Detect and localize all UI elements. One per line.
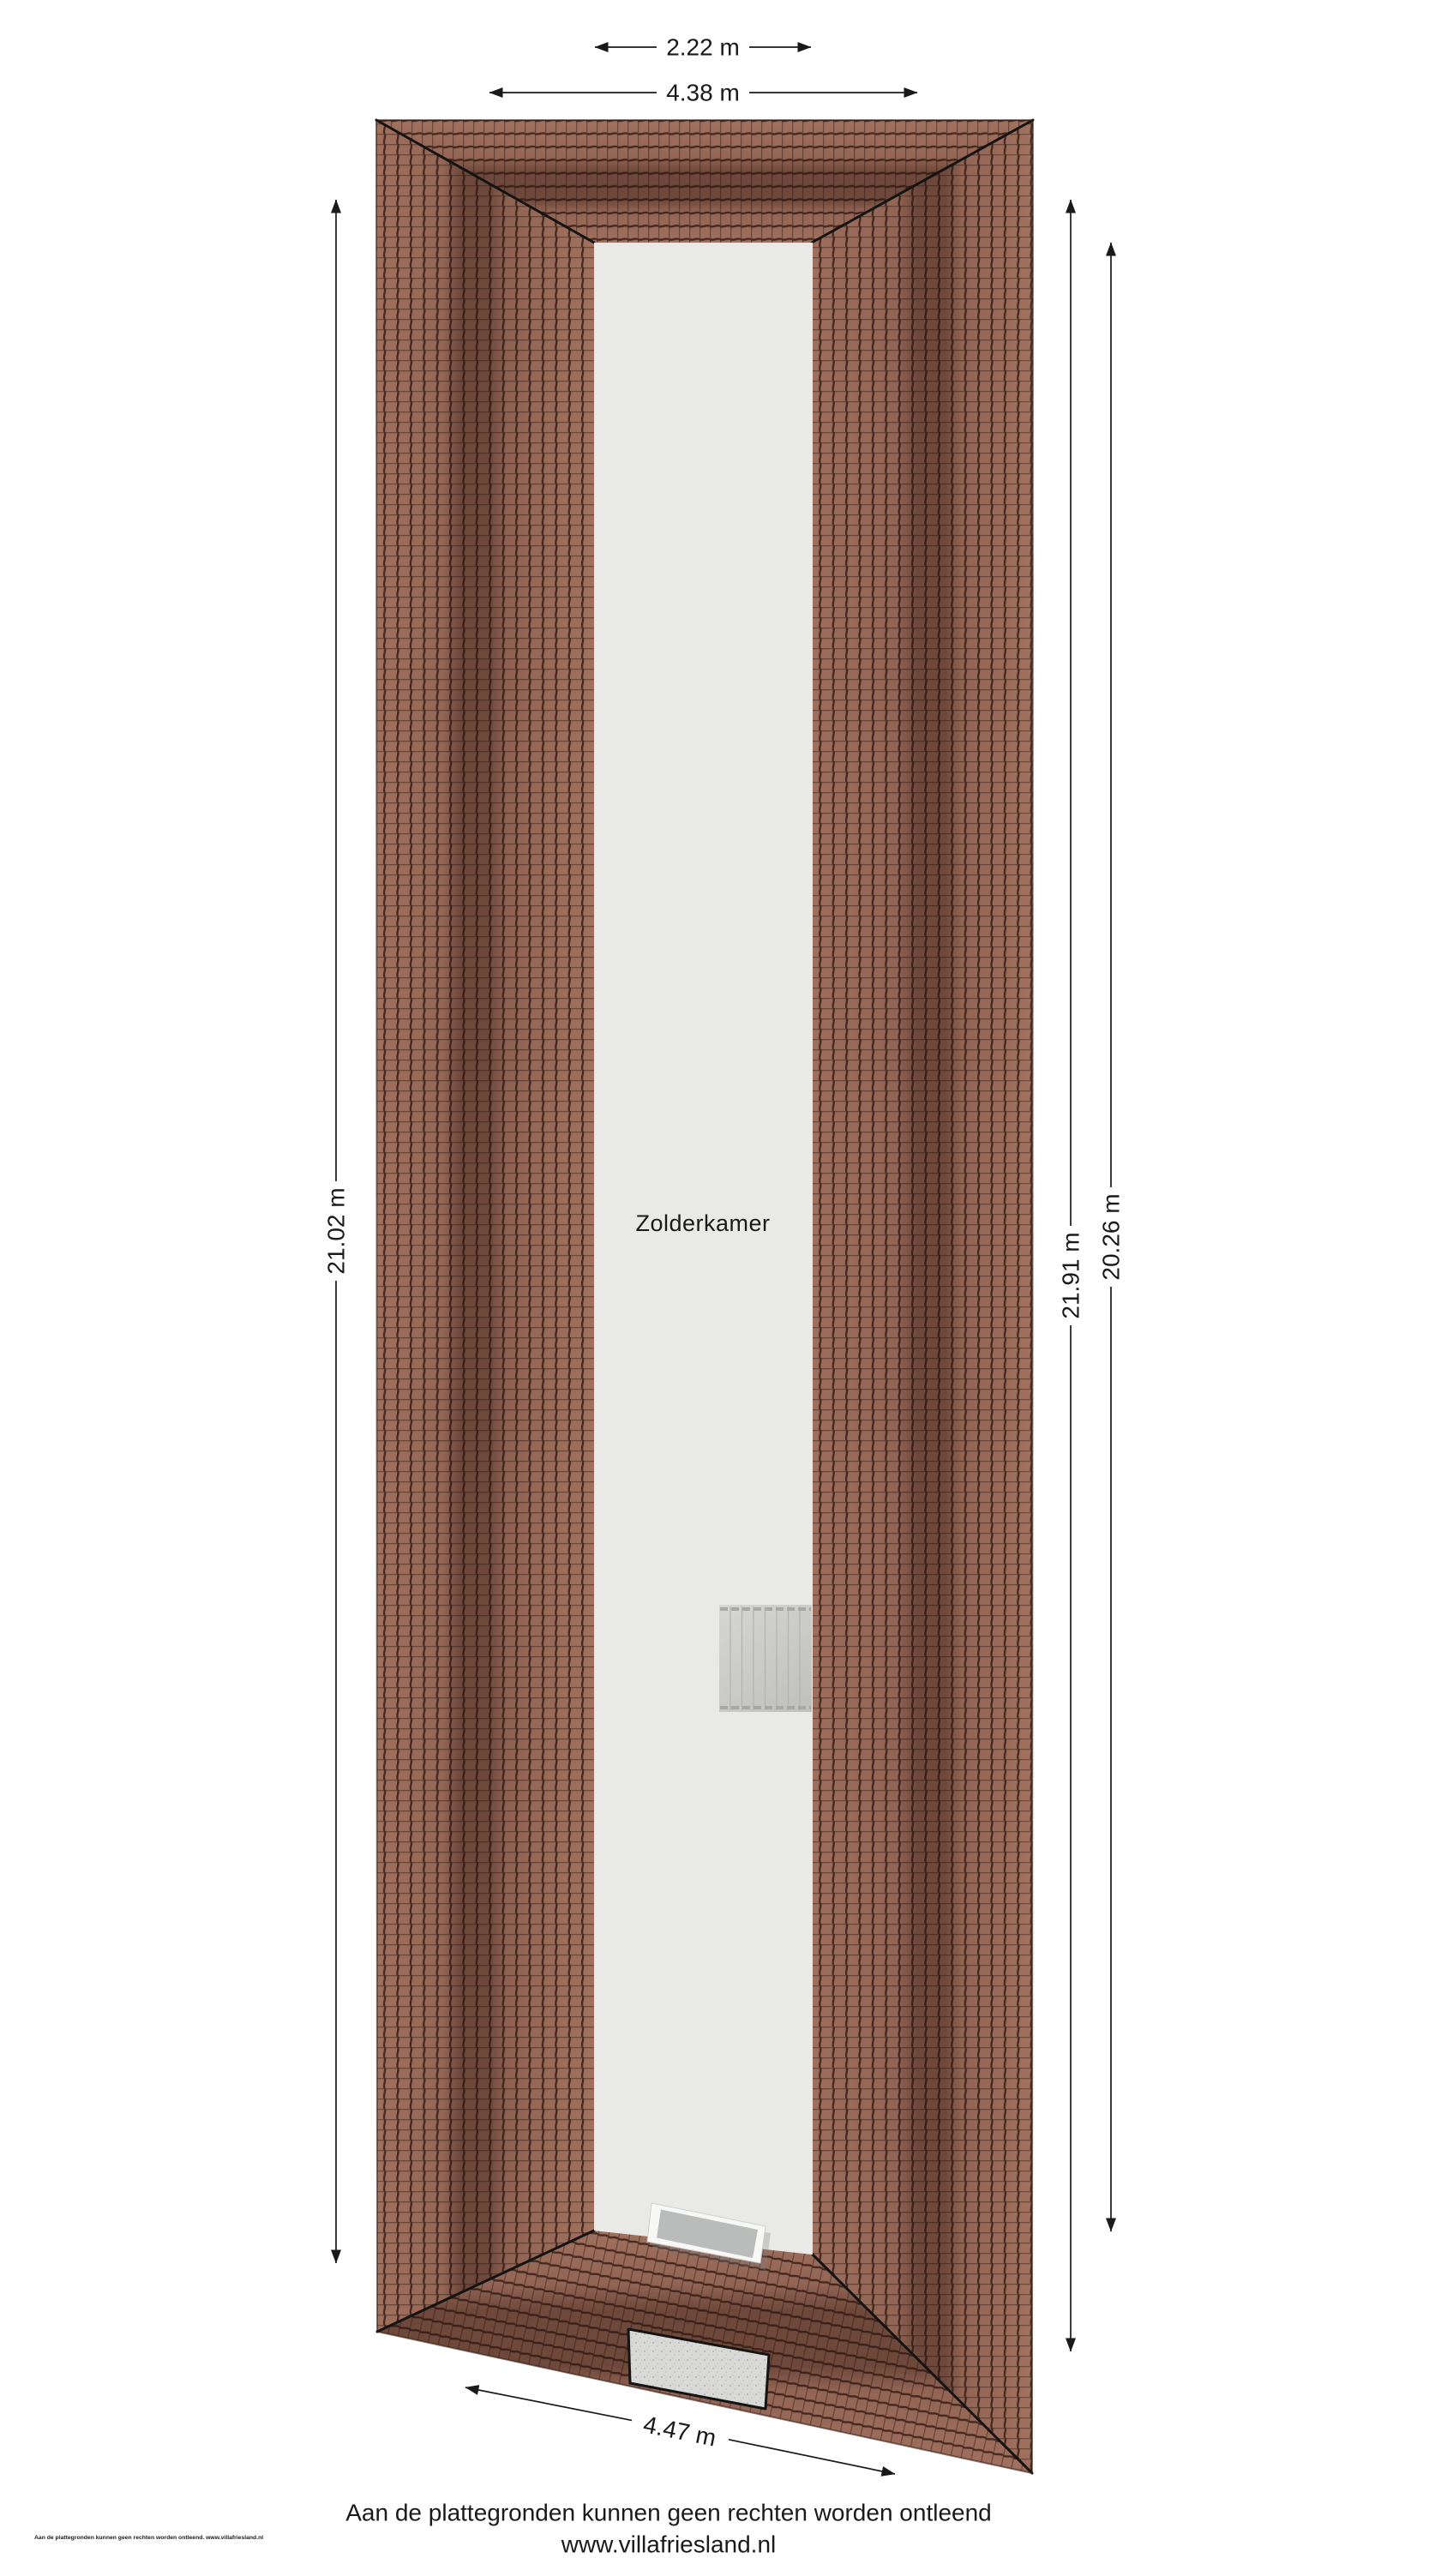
dim-bottom-line-b bbox=[729, 2440, 895, 2474]
dim-left-label: 21.02 m bbox=[323, 1187, 350, 1274]
dim-right-inner-label: 20.26 m bbox=[1098, 1193, 1125, 1280]
roof-plane-right-shading bbox=[812, 120, 1033, 2473]
dim-bottom-line-a bbox=[465, 2387, 632, 2420]
room-floor bbox=[594, 243, 813, 2255]
dim-right-outer-label: 21.91 m bbox=[1058, 1232, 1084, 1318]
roof-plane-left-shading bbox=[376, 120, 594, 2332]
footer-website: www.villafriesland.nl bbox=[561, 2531, 777, 2558]
dim-top-inner-label: 2.22 m bbox=[666, 34, 740, 61]
dim-top-outer-label: 4.38 m bbox=[666, 80, 740, 106]
floorplan-canvas: Zolderkamer bbox=[0, 0, 1447, 2572]
dim-bottom-label: 4.47 m bbox=[641, 2411, 718, 2451]
footer-disclaimer: Aan de plattegronden kunnen geen rechten… bbox=[345, 2500, 991, 2526]
fineprint-disclaimer: Aan de plattegronden kunnen geen rechten… bbox=[34, 2535, 263, 2541]
stairs bbox=[719, 1605, 812, 1712]
room-label: Zolderkamer bbox=[635, 1210, 770, 1236]
